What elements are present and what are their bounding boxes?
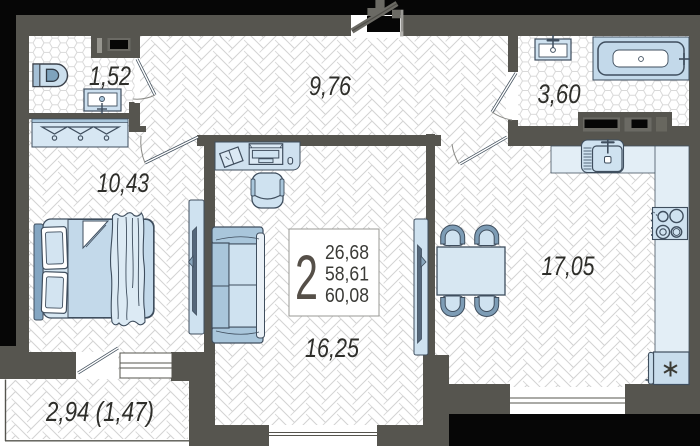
svg-text:16,25: 16,25 bbox=[305, 333, 360, 363]
svg-text:17,05: 17,05 bbox=[542, 251, 596, 281]
svg-text:9,76: 9,76 bbox=[309, 71, 352, 101]
svg-text:3,60: 3,60 bbox=[538, 79, 581, 109]
svg-text:26,68: 26,68 bbox=[325, 241, 369, 264]
svg-text:60,08: 60,08 bbox=[325, 284, 369, 307]
svg-text:10,43: 10,43 bbox=[97, 168, 149, 198]
svg-text:2,94 (1,47): 2,94 (1,47) bbox=[45, 396, 154, 427]
svg-text:58,61: 58,61 bbox=[325, 263, 369, 286]
svg-text:2: 2 bbox=[295, 243, 318, 313]
svg-text:1,52: 1,52 bbox=[89, 61, 131, 91]
